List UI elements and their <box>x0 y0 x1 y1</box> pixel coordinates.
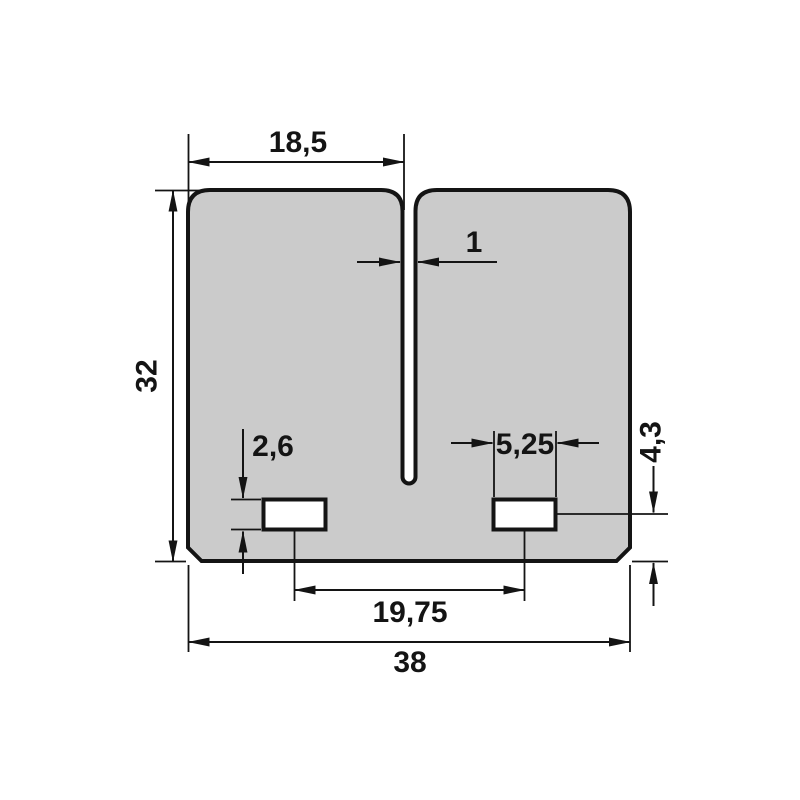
part-body <box>188 190 630 561</box>
drawing-canvas: 18,5 1 32 2,6 5,25 4,3 <box>0 0 800 800</box>
part-view <box>188 190 630 561</box>
dim-label-top-width: 18,5 <box>269 126 327 159</box>
dim-label-hole-width: 5,25 <box>496 428 554 461</box>
dim-label-slot-width: 1 <box>466 226 483 259</box>
hole-left <box>264 500 326 530</box>
technical-drawing: 18,5 1 32 2,6 5,25 4,3 <box>0 0 800 800</box>
dim-label-overall-width: 38 <box>393 646 426 679</box>
hole-right <box>494 500 556 530</box>
dim-label-hole-to-bottom: 4,3 <box>635 421 668 463</box>
dim-label-hole-spacing: 19,75 <box>372 596 447 629</box>
dim-label-overall-height: 32 <box>131 359 164 392</box>
dim-label-hole-height: 2,6 <box>252 430 294 463</box>
